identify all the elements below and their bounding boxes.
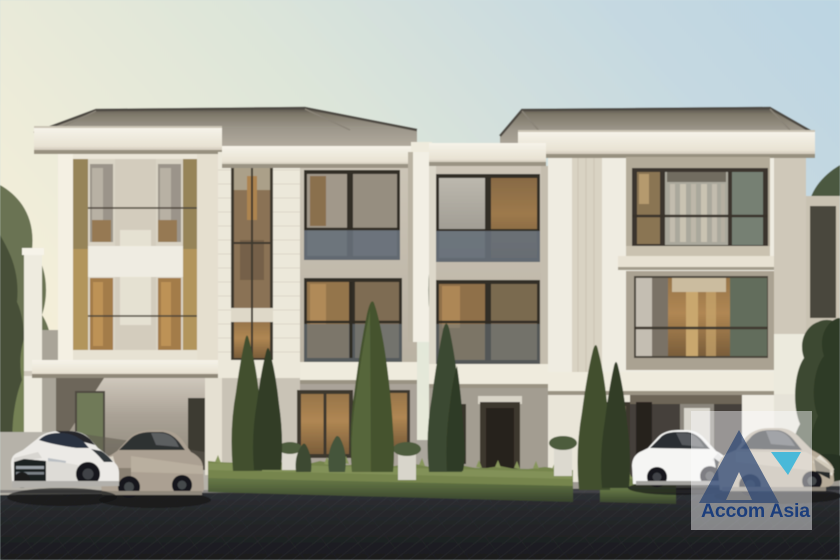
svg-text:Accom Asia: Accom Asia	[701, 500, 810, 522]
